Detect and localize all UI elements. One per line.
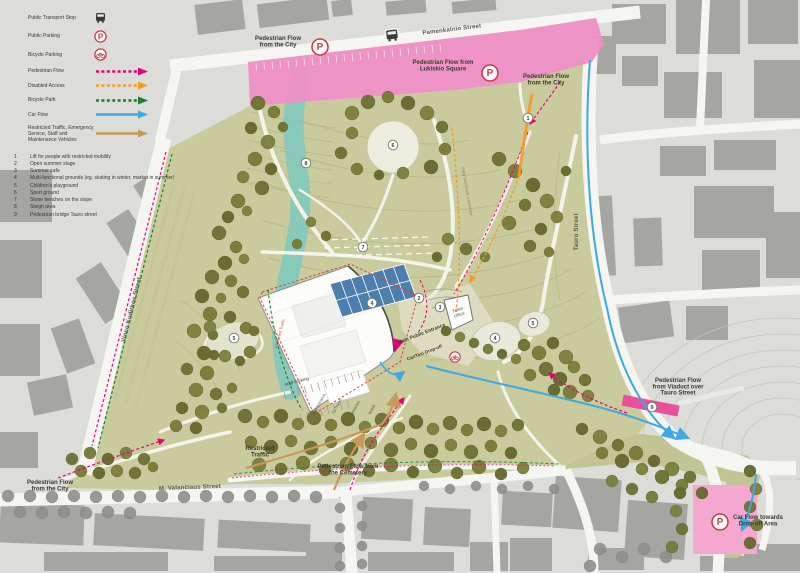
street-tree [471,481,481,491]
tree [148,462,158,472]
street-tree [200,490,212,502]
tree [636,463,648,475]
numbered-marker: 6 [388,140,398,150]
legend-item: Disabled Access [14,81,219,90]
svg-text:3: 3 [439,305,442,311]
tree [511,354,521,364]
tree [492,152,506,166]
tree [93,467,105,479]
tree [655,470,669,484]
street-tree [244,490,256,502]
numbered-marker: 7 [358,242,368,252]
tree [544,247,554,257]
svg-text:4: 4 [371,301,374,307]
tree [190,422,202,434]
street-tree [58,506,70,518]
street-tree [36,507,48,519]
tree [517,462,529,474]
tree [237,171,249,183]
numbered-marker: 1 [523,113,533,123]
city-building [686,306,728,340]
tree [674,487,686,499]
tree [535,223,547,235]
tree [129,467,141,479]
svg-text:8: 8 [305,161,308,167]
legend-item-number: 1 [14,154,30,160]
legend-item-number: 6 [14,190,30,196]
tree [384,443,398,457]
city-building [618,301,675,344]
legend-item: Public ParkingP [14,30,219,43]
tree [222,211,234,223]
tree [428,459,442,473]
tree [670,505,682,517]
svg-text:5: 5 [532,321,535,327]
tree [382,91,394,103]
tree [676,523,688,535]
tree [274,409,288,423]
tree [405,438,417,450]
street-tree [335,503,345,513]
tree [518,339,530,351]
tree [464,445,478,459]
tree [420,106,434,120]
city-building [331,0,353,17]
street-tree [112,490,124,502]
city-building [214,556,320,571]
city-building [368,552,454,571]
legend-item-label: Disabled Access [28,83,94,89]
tree [225,275,237,287]
street-tree [445,484,455,494]
tree [138,453,150,465]
tree [480,252,490,262]
bus-icon [94,12,107,24]
tree [524,369,536,381]
city-building [217,520,310,553]
tree [75,465,87,477]
street-tree [335,523,345,533]
tree [409,415,423,429]
tree [235,356,245,366]
tree [261,135,275,149]
tree [436,121,448,133]
numbered-marker: 4 [367,298,377,308]
tree [374,170,384,180]
svg-text:4: 4 [494,336,497,342]
tree [335,147,347,159]
tree [187,324,201,338]
tree [189,383,203,397]
city-building [766,212,800,278]
city-building [501,491,553,528]
svg-text:P: P [717,517,724,528]
tree [197,346,211,360]
tree [292,418,304,430]
street-tree [497,484,507,494]
tree [495,468,507,480]
city-building [664,72,722,118]
tree [181,363,193,375]
tree [205,270,219,284]
tree [203,307,217,321]
legend: Public Transport StopPublic ParkingPBicy… [14,12,219,219]
street-tree [178,491,190,503]
tree [212,226,226,240]
street-label: Tauro Street [574,213,580,250]
city-building [748,0,798,44]
tree [200,366,214,380]
legend-item-label: Summer cafe [30,168,219,174]
city-building [0,240,42,298]
legend-item-label: Public Transport Stop [28,15,94,21]
tree [217,403,227,413]
city-building [660,146,706,176]
tree [483,344,493,354]
numbered-marker: 5 [229,333,239,343]
tree [219,350,231,362]
tree [606,475,618,487]
tree [626,483,638,495]
tree [648,455,660,467]
tree [231,194,245,208]
legend-item-label: Sleigh area [30,204,219,210]
legend-item-label: Restricted Traffic, Emergency Service, S… [28,125,94,143]
city-building [622,56,658,86]
street-tree [102,506,114,518]
legend-item-label: Pedestrian Flow [28,68,94,74]
street-tree [222,491,234,503]
legend-item: Restricted Traffic, Emergency Service, S… [14,125,219,143]
tree [579,374,591,386]
tree [204,321,216,333]
street-tree [638,543,650,555]
tree [210,388,222,400]
street-tree [584,560,596,572]
tree [497,349,507,359]
city-building [93,513,205,551]
numbered-marker: 4 [490,333,500,343]
legend-numbered-list: 1Lift for people with restricted mobilit… [14,154,219,218]
site-plan-page: PPP12344556789 Pamenkalnio StreetTauro S… [0,0,800,573]
flow-label: Pedestrian Flow fromLukiskio Square [412,60,473,72]
tree [540,194,554,208]
legend-item-label: Car Flow [28,112,94,118]
street-tree [357,521,367,531]
legend-item-label: Sport ground [30,190,219,196]
flow-arrow-sample [94,67,150,76]
tree [255,181,269,195]
tree [265,163,277,175]
legend-item-number: 2 [14,161,30,167]
legend-item-label: Stone benches on the slope [30,197,219,203]
tree [321,231,331,241]
tree [170,420,182,432]
tree [551,211,563,223]
tree [568,361,580,373]
svg-text:7: 7 [362,245,365,251]
tree [244,346,256,358]
flow-label: Car Flow towardsDrop-off Area [733,515,784,527]
tree [224,311,236,323]
legend-item: Pedestrian Flow [14,67,219,76]
tree [629,446,643,460]
tree [502,216,516,230]
tree [744,537,756,549]
city-building [754,60,800,118]
street-tree [357,541,367,551]
flow-arrow-sample [94,129,150,138]
tree [615,454,629,468]
legend-item-number: 9 [14,212,30,218]
street-tree [310,491,322,503]
parking-icon: P [482,65,498,81]
street-tree [288,490,300,502]
tree [424,160,438,174]
tree [469,338,479,348]
numbered-marker: 3 [435,302,445,312]
tree [612,439,624,451]
street-tree [266,491,278,503]
legend-item-label: Lift for people with restricted mobility [30,154,219,160]
street-tree [134,491,146,503]
numbered-marker: 8 [301,158,311,168]
city-building [633,218,663,267]
tree [195,405,209,419]
tree [216,293,226,303]
tree [443,416,457,430]
flow-label: Pedestrian Flowfrom the City [255,36,301,48]
street-tree [419,481,429,491]
tree [424,444,438,458]
parking-icon: P [94,30,107,43]
tree [524,240,536,252]
tree [495,425,507,437]
tree [407,466,419,478]
legend-item-label: Bicycle Parking [28,52,94,58]
tree [393,422,405,434]
tree [532,346,546,360]
tree [485,440,497,452]
tree [505,447,517,459]
tree [548,384,560,396]
legend-numbered-item: 7Stone benches on the slope [14,197,219,203]
legend-item-label: Public Parking [28,33,94,39]
legend-numbered-item: 1Lift for people with restricted mobilit… [14,154,219,160]
legend-item-number: 3 [14,168,30,174]
parking-icon: P [712,514,728,530]
tree [451,467,463,479]
tree [325,419,337,431]
tree [209,350,219,360]
street-tree [357,501,367,511]
tree [251,96,265,110]
city-building [702,250,760,292]
tree [401,96,415,110]
legend-numbered-item: 8Sleigh area [14,204,219,210]
svg-text:P: P [98,32,104,41]
legend-item-number: 7 [14,197,30,203]
tree [237,286,249,298]
tree [439,143,451,155]
tree [461,424,473,436]
tree [292,239,302,249]
tree [66,453,78,465]
tree [561,166,571,176]
tree [397,167,409,179]
tree [442,233,454,245]
bicycle-parking-icon [94,48,107,61]
numbered-marker: 2 [414,293,424,303]
tree [84,447,96,459]
flow-arrow-sample [94,81,150,90]
tree [646,491,658,503]
tree [593,430,607,444]
city-building [44,552,168,571]
legend-numbered-item: 5Children's playground [14,183,219,189]
tree [526,178,540,192]
tree [582,390,594,402]
tree [512,419,524,431]
street-tree [90,491,102,503]
tree [268,106,280,118]
legend-item-label: Multi-functional grounds (eg. skating in… [30,175,219,181]
street-tree [335,561,345,571]
tree [432,252,442,262]
tree [195,289,209,303]
tree [249,326,259,336]
city-building [714,140,776,170]
city-building [0,324,40,376]
legend-item-number: 5 [14,183,30,189]
street-tree [523,481,533,491]
legend-numbered-item: 3Summer cafe [14,168,219,174]
flow-label: Pedestrian Flowfrom the City [523,74,569,86]
flow-arrow-sample [94,96,150,105]
tree [427,423,439,435]
city-building [510,538,552,571]
tree [345,106,359,120]
flow-arrow-sample [94,110,150,119]
legend-numbered-item: 9Pedestrian bridge Tauro street [14,212,219,218]
street-tree [2,490,14,502]
tree [384,458,398,472]
tree [744,465,756,477]
tree [242,206,252,216]
tree [666,541,678,553]
legend-numbered-item: 2Open summer stage [14,161,219,167]
tree [351,163,363,175]
legend-item-label: Children's playground [30,183,219,189]
tree [460,243,472,255]
city-building [470,542,508,571]
svg-text:P: P [317,42,324,53]
street-tree [124,507,136,519]
numbered-marker: 5 [528,318,538,328]
street-tree [14,506,26,518]
tree [519,199,531,211]
legend-numbered-item: 6Sport ground [14,190,219,196]
tree [278,122,288,132]
legend-item-label: Bicycle Path [28,97,94,103]
street-tree [357,559,367,569]
tree [477,417,491,431]
street-tree [594,543,606,555]
tree [306,217,316,227]
city-building [361,497,413,542]
numbered-marker: 9 [647,402,657,412]
bus-icon [384,28,399,43]
tree [227,383,237,393]
tree [257,416,269,428]
legend-item: Bicycle Path [14,96,219,105]
legend-item-label: Pedestrian bridge Tauro street [30,212,219,218]
legend-item-number: 4 [14,175,30,181]
tree [238,409,252,423]
city-building [694,186,774,238]
street-tree [46,491,58,503]
parking-icon: P [312,39,328,55]
tree [245,122,257,134]
tree [455,332,465,342]
tree [445,439,457,451]
street-tree [68,490,80,502]
svg-text:1: 1 [527,116,530,122]
bicycle-parking-icon [450,352,460,362]
tree [248,152,262,166]
legend-item: Car Flow [14,110,219,119]
tree [230,241,242,253]
tree [120,447,132,459]
city-building [423,507,471,547]
tree [750,483,762,495]
tree [576,423,588,435]
svg-text:2: 2 [418,296,421,302]
street-tree [549,484,559,494]
street-tree [335,543,345,553]
legend-item-number: 8 [14,204,30,210]
tree [176,402,188,414]
tree [596,447,608,459]
tree [111,465,123,477]
legend-numbered-item: 4Multi-functional grounds (eg. skating i… [14,175,219,181]
tree [365,437,377,449]
street-tree [616,551,628,563]
legend-item: Public Transport Stop [14,12,219,24]
flow-label: Pedestrian Flowfrom the City [27,480,73,492]
tree [547,337,559,349]
svg-text:9: 9 [651,405,654,411]
tree [696,487,708,499]
tree [361,95,375,109]
tree [239,254,249,264]
street-tree [80,507,92,519]
city-building [0,432,38,468]
svg-text:5: 5 [233,336,236,342]
tree [346,127,358,139]
tree [218,256,232,270]
tree [285,435,297,447]
legend-item-label: Open summer stage [30,161,219,167]
svg-text:P: P [487,68,494,79]
legend-item: Bicycle Parking [14,48,219,61]
svg-text:6: 6 [392,143,395,149]
